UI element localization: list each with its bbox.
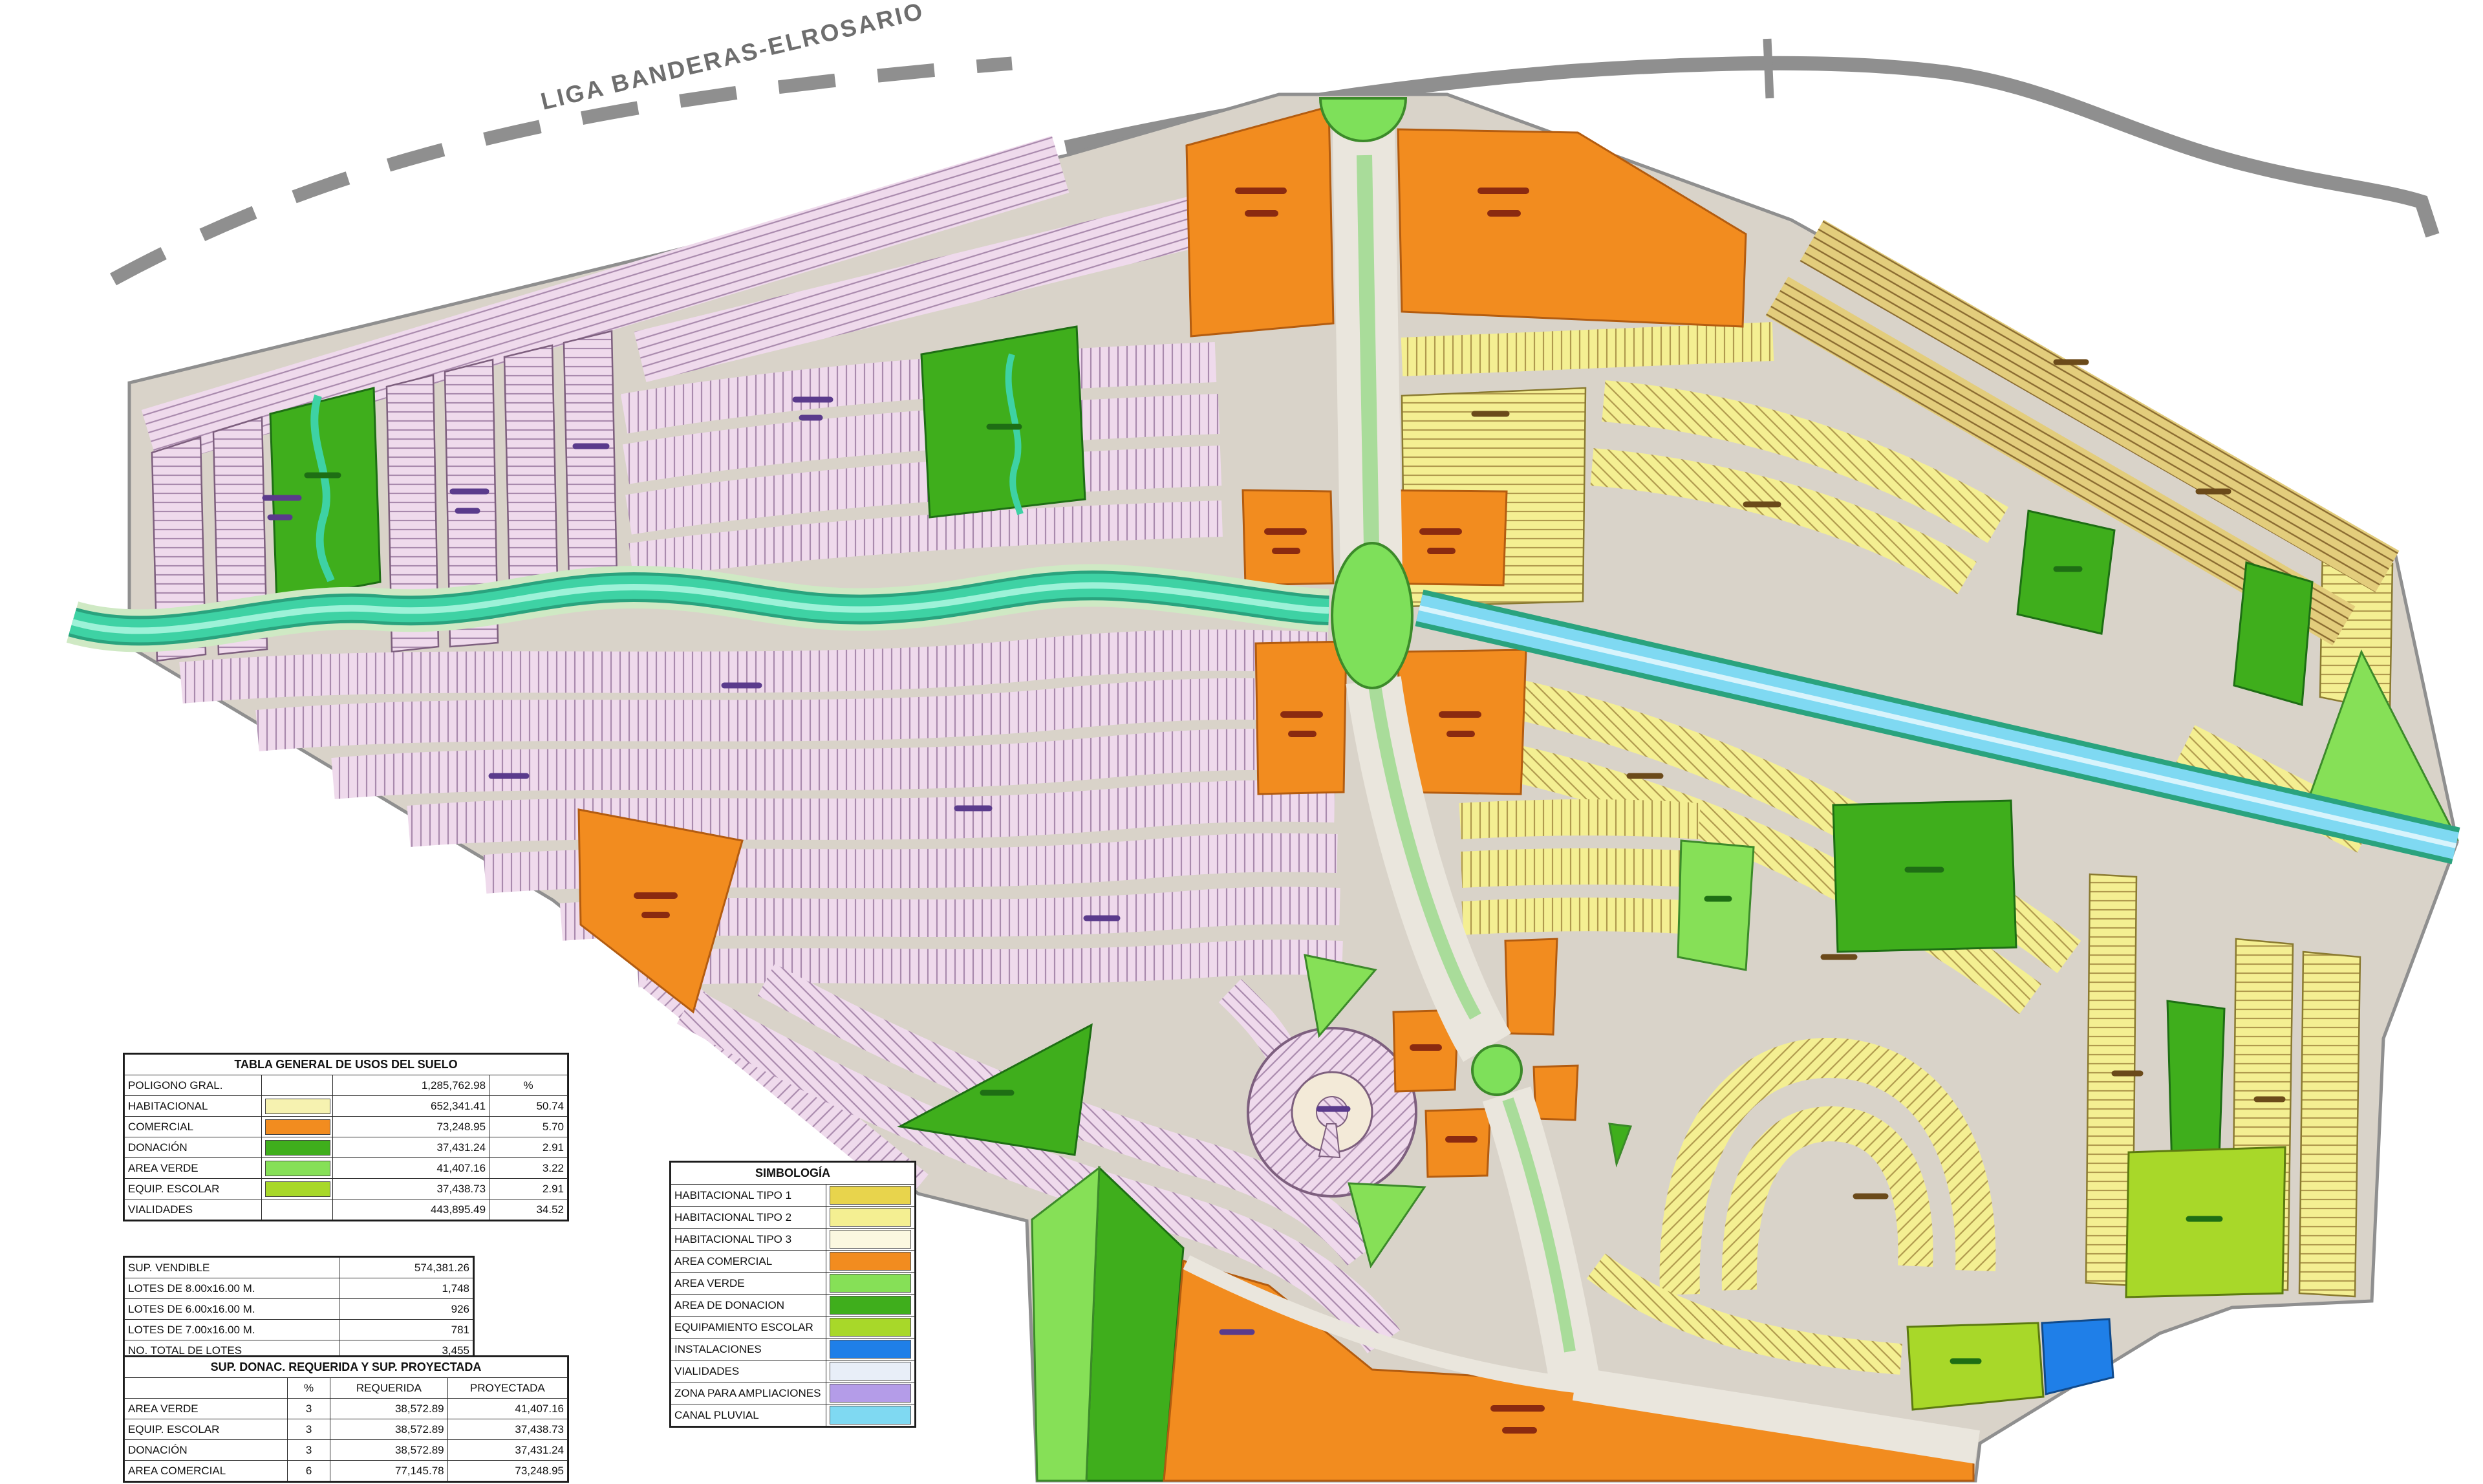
pink-strip xyxy=(564,331,617,582)
table-row: DONACIÓN338,572.8937,431.24 xyxy=(125,1440,568,1461)
legend-row: AREA COMERCIAL xyxy=(671,1251,915,1273)
table-row: DONACIÓN37,431.242.91 xyxy=(125,1137,568,1158)
plan-canvas: { "map": { "highway_label": "LIGA BANDER… xyxy=(0,0,2483,1484)
donacion-label: AREA COMERCIAL xyxy=(125,1461,288,1481)
legend-row: ZONA PARA AMPLIACIONES xyxy=(671,1382,915,1404)
park-donacion xyxy=(2234,563,2312,705)
use-value: 443,895.49 xyxy=(333,1199,489,1220)
lot-label: LOTES DE 8.00x16.00 M. xyxy=(125,1278,339,1299)
table-row: AREA VERDE338,572.8941,407.16 xyxy=(125,1399,568,1419)
legend-color-swatch xyxy=(830,1406,911,1425)
header-label: POLIGONO GRAL. xyxy=(125,1075,262,1096)
use-pct: 2.91 xyxy=(489,1137,568,1158)
donacion-proy: 73,248.95 xyxy=(447,1461,567,1481)
legend-label: ZONA PARA AMPLIACIONES xyxy=(671,1382,826,1404)
pink-wavy-row xyxy=(638,957,1342,970)
table-row: EQUIP. ESCOLAR37,438.732.91 xyxy=(125,1179,568,1199)
legend-row: AREA VERDE xyxy=(671,1273,915,1295)
vendible-total: 574,381.26 xyxy=(339,1258,473,1278)
legend-label: AREA VERDE xyxy=(671,1273,826,1295)
commercial-block xyxy=(1187,107,1333,336)
park-donacion xyxy=(921,327,1085,517)
color-swatch xyxy=(265,1161,331,1176)
land-use-table-panel: TABLA GENERAL DE USOS DEL SUELOPOLIGONO … xyxy=(123,1053,569,1221)
donacion-header: REQUERIDA xyxy=(330,1378,447,1399)
use-swatch xyxy=(261,1137,333,1158)
legend-title-row: SIMBOLOGÍA xyxy=(671,1163,915,1185)
south-roundabout xyxy=(1472,1046,1521,1095)
use-value: 73,248.95 xyxy=(333,1117,489,1137)
use-value: 37,431.24 xyxy=(333,1137,489,1158)
legend-swatch-cell xyxy=(826,1273,914,1295)
legend-color-swatch xyxy=(830,1362,911,1381)
donacion-pct: 3 xyxy=(287,1440,330,1461)
yellow-strip xyxy=(2299,952,2360,1296)
use-label: AREA VERDE xyxy=(125,1158,262,1179)
legend-label: CANAL PLUVIAL xyxy=(671,1404,826,1426)
land-use-table: TABLA GENERAL DE USOS DEL SUELOPOLIGONO … xyxy=(124,1054,568,1220)
table-row: LOTES DE 6.00x16.00 M.926 xyxy=(125,1299,473,1320)
legend-row: AREA DE DONACION xyxy=(671,1295,915,1317)
header-swatch xyxy=(261,1075,333,1096)
legend-color-swatch xyxy=(830,1318,911,1337)
header-pct: % xyxy=(489,1075,568,1096)
legend-label: INSTALACIONES xyxy=(671,1339,826,1360)
road-spur xyxy=(1767,39,1770,98)
donacion-proy: 37,438.73 xyxy=(447,1419,567,1440)
table-title-row: SUP. DONAC. REQUERIDA Y SUP. PROYECTADA xyxy=(125,1357,568,1378)
donation-table-panel: SUP. DONAC. REQUERIDA Y SUP. PROYECTADA%… xyxy=(123,1355,569,1483)
legend-swatch-cell xyxy=(826,1382,914,1404)
table-row: HABITACIONAL652,341.4150.74 xyxy=(125,1096,568,1117)
commercial-block xyxy=(1505,939,1557,1035)
use-swatch xyxy=(261,1179,333,1199)
donacion-req: 38,572.89 xyxy=(330,1419,447,1440)
donacion-header xyxy=(125,1378,288,1399)
legend-color-swatch xyxy=(830,1230,911,1249)
donacion-header: % xyxy=(287,1378,330,1399)
legend-swatch-cell xyxy=(826,1295,914,1317)
donacion-label: AREA VERDE xyxy=(125,1399,288,1419)
commercial-block xyxy=(1398,129,1746,327)
legend-swatch-cell xyxy=(826,1339,914,1360)
green-park-small xyxy=(1678,841,1754,970)
legend-table: SIMBOLOGÍAHABITACIONAL TIPO 1HABITACIONA… xyxy=(671,1162,915,1426)
legend-color-swatch xyxy=(830,1274,911,1293)
park-donacion xyxy=(1833,801,2016,952)
use-label: DONACIÓN xyxy=(125,1137,262,1158)
yellow-row xyxy=(1461,866,1701,870)
park-donacion xyxy=(2017,511,2114,634)
legend-swatch-cell xyxy=(826,1207,914,1229)
sellable-area-table-panel: SUP. VENDIBLE574,381.26LOTES DE 8.00x16.… xyxy=(123,1256,475,1362)
table-title: TABLA GENERAL DE USOS DEL SUELO xyxy=(125,1055,568,1075)
legend-color-swatch xyxy=(830,1340,911,1359)
lot-label: LOTES DE 7.00x16.00 M. xyxy=(125,1320,339,1340)
equipamiento-escolar-zone xyxy=(1908,1323,2043,1410)
commercial-block xyxy=(1243,490,1333,585)
use-label: HABITACIONAL xyxy=(125,1096,262,1117)
pink-wavy-row xyxy=(409,801,1335,826)
table-header-row: POLIGONO GRAL.1,285,762.98% xyxy=(125,1075,568,1096)
yellow-row xyxy=(1402,341,1773,357)
table-title-row: SUP. VENDIBLE574,381.26 xyxy=(125,1258,473,1278)
area-verde-strip-bottom xyxy=(1032,1168,1099,1481)
vendible-title: SUP. VENDIBLE xyxy=(125,1258,339,1278)
lot-count: 926 xyxy=(339,1299,473,1320)
commercial-block xyxy=(1534,1066,1578,1120)
use-pct: 3.22 xyxy=(489,1158,568,1179)
use-pct: 34.52 xyxy=(489,1199,568,1220)
color-swatch xyxy=(265,1181,331,1197)
use-swatch xyxy=(261,1117,333,1137)
table-row: AREA COMERCIAL677,145.7873,248.95 xyxy=(125,1461,568,1481)
legend-color-swatch xyxy=(830,1208,911,1227)
use-label: EQUIP. ESCOLAR xyxy=(125,1179,262,1199)
legend-color-swatch xyxy=(830,1384,911,1403)
table-row: LOTES DE 7.00x16.00 M.781 xyxy=(125,1320,473,1340)
donacion-label: DONACIÓN xyxy=(125,1440,288,1461)
use-label: COMERCIAL xyxy=(125,1117,262,1137)
table-row: VIALIDADES443,895.4934.52 xyxy=(125,1199,568,1220)
lot-count: 781 xyxy=(339,1320,473,1340)
use-label: VIALIDADES xyxy=(125,1199,262,1220)
legend-row: HABITACIONAL TIPO 1 xyxy=(671,1185,915,1207)
legend-row: EQUIPAMIENTO ESCOLAR xyxy=(671,1317,915,1339)
lot-label: LOTES DE 6.00x16.00 M. xyxy=(125,1299,339,1320)
legend-label: AREA COMERCIAL xyxy=(671,1251,826,1273)
table-row: LOTES DE 8.00x16.00 M.1,748 xyxy=(125,1278,473,1299)
legend-swatch-cell xyxy=(826,1251,914,1273)
legend-label: HABITACIONAL TIPO 1 xyxy=(671,1185,826,1207)
color-swatch xyxy=(265,1119,331,1135)
use-pct: 50.74 xyxy=(489,1096,568,1117)
use-value: 41,407.16 xyxy=(333,1158,489,1179)
legend-row: HABITACIONAL TIPO 2 xyxy=(671,1207,915,1229)
legend-label: EQUIPAMIENTO ESCOLAR xyxy=(671,1317,826,1339)
donacion-header: PROYECTADA xyxy=(447,1378,567,1399)
pink-strip xyxy=(504,345,557,586)
yellow-row xyxy=(1460,817,1699,821)
legend-title: SIMBOLOGÍA xyxy=(671,1163,915,1185)
legend-panel: SIMBOLOGÍAHABITACIONAL TIPO 1HABITACIONA… xyxy=(669,1161,916,1428)
instalaciones-zone xyxy=(2042,1319,2113,1394)
legend-swatch-cell xyxy=(826,1317,914,1339)
table-row: EQUIP. ESCOLAR338,572.8937,438.73 xyxy=(125,1419,568,1440)
use-swatch xyxy=(261,1158,333,1179)
table-row: COMERCIAL73,248.955.70 xyxy=(125,1117,568,1137)
use-value: 37,438.73 xyxy=(333,1179,489,1199)
header-value: 1,285,762.98 xyxy=(333,1075,489,1096)
use-swatch xyxy=(261,1199,333,1220)
use-swatch xyxy=(261,1096,333,1117)
donacion-req: 38,572.89 xyxy=(330,1399,447,1419)
table-header-row: %REQUERIDAPROYECTADA xyxy=(125,1378,568,1399)
legend-row: HABITACIONAL TIPO 3 xyxy=(671,1229,915,1251)
use-pct: 5.70 xyxy=(489,1117,568,1137)
legend-label: HABITACIONAL TIPO 2 xyxy=(671,1207,826,1229)
equipamiento-escolar-zone xyxy=(2126,1147,2285,1297)
legend-swatch-cell xyxy=(826,1185,914,1207)
donacion-req: 38,572.89 xyxy=(330,1440,447,1461)
donacion-pct: 6 xyxy=(287,1461,330,1481)
legend-swatch-cell xyxy=(826,1229,914,1251)
legend-color-swatch xyxy=(830,1186,911,1205)
donacion-title: SUP. DONAC. REQUERIDA Y SUP. PROYECTADA xyxy=(125,1357,568,1378)
color-swatch xyxy=(265,1140,331,1156)
legend-color-swatch xyxy=(830,1296,911,1315)
donation-table: SUP. DONAC. REQUERIDA Y SUP. PROYECTADA%… xyxy=(124,1357,568,1481)
sellable-area-table: SUP. VENDIBLE574,381.26LOTES DE 8.00x16.… xyxy=(124,1257,473,1361)
circular-plaza-block xyxy=(1248,1028,1416,1196)
legend-row: CANAL PLUVIAL xyxy=(671,1404,915,1426)
donacion-label: EQUIP. ESCOLAR xyxy=(125,1419,288,1440)
legend-row: VIALIDADES xyxy=(671,1360,915,1382)
donacion-pct: 3 xyxy=(287,1399,330,1419)
donacion-pct: 3 xyxy=(287,1419,330,1440)
use-pct: 2.91 xyxy=(489,1179,568,1199)
yellow-row xyxy=(1463,914,1702,918)
use-value: 652,341.41 xyxy=(333,1096,489,1117)
donacion-proy: 37,431.24 xyxy=(447,1440,567,1461)
legend-label: AREA DE DONACION xyxy=(671,1295,826,1317)
legend-swatch-cell xyxy=(826,1360,914,1382)
donacion-proy: 41,407.16 xyxy=(447,1399,567,1419)
legend-row: INSTALACIONES xyxy=(671,1339,915,1360)
donacion-req: 77,145.78 xyxy=(330,1461,447,1481)
legend-label: HABITACIONAL TIPO 3 xyxy=(671,1229,826,1251)
lot-count: 1,748 xyxy=(339,1278,473,1299)
commercial-block xyxy=(1426,1109,1490,1177)
color-swatch xyxy=(265,1099,331,1114)
legend-label: VIALIDADES xyxy=(671,1360,826,1382)
central-roundabout xyxy=(1332,543,1412,688)
legend-swatch-cell xyxy=(826,1404,914,1426)
table-row: AREA VERDE41,407.163.22 xyxy=(125,1158,568,1179)
legend-color-swatch xyxy=(830,1252,911,1271)
table-title-row: TABLA GENERAL DE USOS DEL SUELO xyxy=(125,1055,568,1075)
